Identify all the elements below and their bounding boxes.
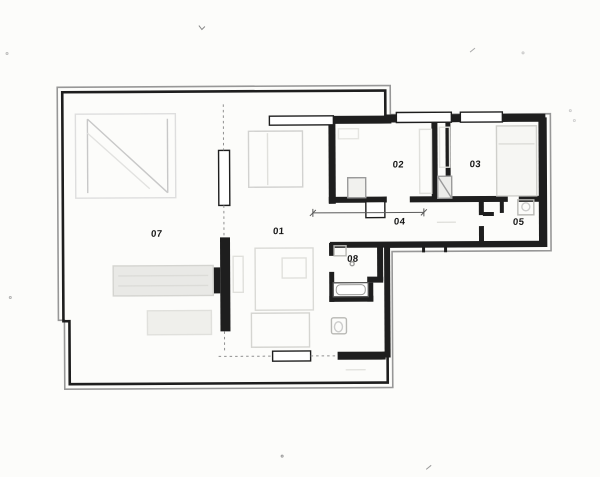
floor-plan: 01 02 03 04 05 07 08 [0, 0, 600, 477]
floor-plan-drawing [0, 0, 600, 477]
wall-top-b-seg [451, 114, 460, 122]
door-jamb-tick [444, 247, 447, 252]
windows [218, 112, 503, 361]
wall-08-right [377, 243, 383, 281]
wall-02-top [333, 116, 391, 124]
interior-walls [205, 114, 546, 361]
wall-08-left-a [329, 243, 334, 256]
wall-03-right [538, 120, 546, 246]
sketch-01-side [233, 256, 243, 292]
sketch-02-cabinet [348, 178, 366, 198]
scan-dot [9, 297, 11, 299]
room-label-02: 02 [392, 161, 404, 169]
wall-05-partition [500, 201, 504, 213]
room-label-08: 08 [347, 256, 359, 264]
window-room03 [460, 112, 502, 122]
room-label-01: 01 [273, 228, 285, 236]
scanned-floor-plan-page: 01 02 03 04 05 07 08 [0, 0, 600, 477]
window-room01-bottom [273, 351, 311, 361]
scan-mark [426, 465, 431, 469]
scan-mark [470, 48, 475, 52]
sketch-05-washer [518, 200, 534, 215]
window-bar-alcove [269, 116, 333, 125]
wall-hall-bottom [330, 241, 546, 248]
wall-bedrooms-bottom-2 [410, 196, 508, 203]
scan-dot [281, 455, 283, 457]
scan-dot [569, 110, 571, 112]
sketch-05-washer-drum [522, 203, 530, 211]
wc-bowl [334, 322, 342, 332]
sketch-07-blob [147, 310, 211, 334]
wall-05-partition [479, 226, 484, 243]
room-label-04: 04 [394, 218, 406, 226]
room-label-03: 03 [469, 161, 481, 169]
window-room02 [396, 112, 451, 122]
sketch-01-lower [251, 313, 309, 347]
pier-07-01 [220, 237, 230, 331]
wall-08-notch [367, 277, 383, 283]
scan-dot [573, 120, 575, 122]
column-radiator [219, 150, 230, 205]
wall-05-partition [483, 212, 494, 216]
outer-walls [57, 85, 552, 390]
wall-01-bottom [338, 352, 386, 360]
sketch-07-diagonal [87, 119, 167, 193]
wall-top-b-seg [385, 114, 397, 122]
scan-dot [522, 52, 524, 54]
sketch-02-band [419, 129, 431, 193]
sketch-03-bed [496, 126, 536, 196]
sketch-01-mid2 [282, 258, 306, 278]
door-jamb-tick [422, 247, 425, 252]
wall-02-left [328, 121, 335, 204]
sketch-07-sofa [113, 265, 213, 296]
sketch-02-mark [338, 129, 358, 139]
room-label-07: 07 [151, 231, 163, 239]
sketch-07-diagonal2 [87, 133, 149, 189]
wall-top-b-seg [502, 114, 545, 122]
scan-dot [6, 53, 8, 55]
scan-mark [199, 25, 205, 29]
wall-mid-vertical [384, 246, 391, 358]
room-label-05: 05 [513, 219, 525, 227]
duct-box [366, 202, 385, 218]
sketch-01-upper [248, 131, 302, 187]
